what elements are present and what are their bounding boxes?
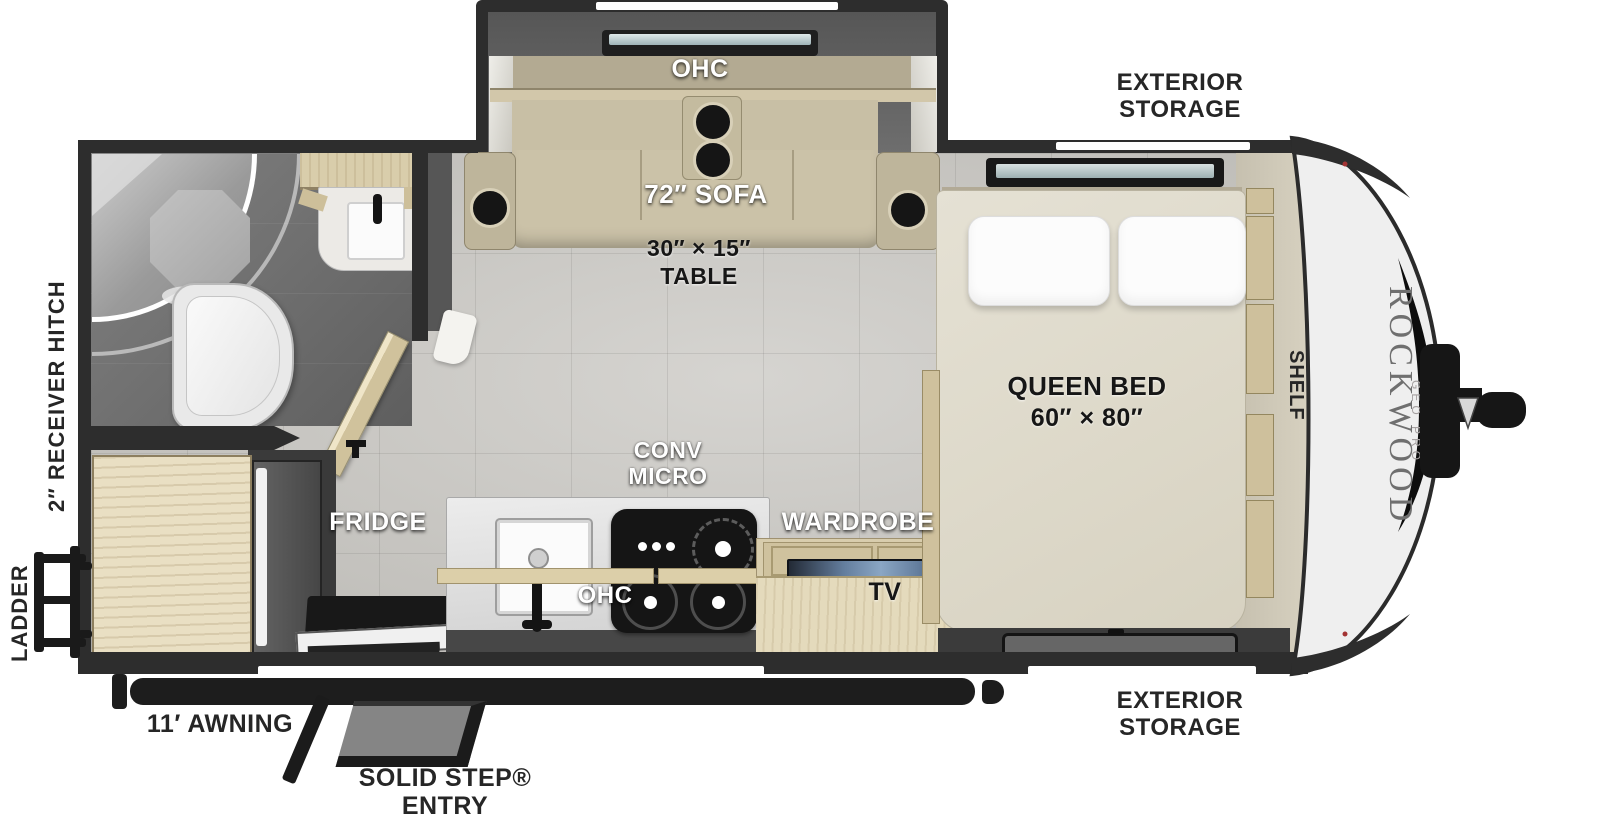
label-ohc-sofa: OHC	[600, 55, 800, 83]
label-queen-bed: QUEEN BED	[987, 372, 1187, 401]
label-exterior-storage-top: EXTERIOR STORAGE	[1080, 70, 1280, 124]
slideout-side-right	[911, 56, 937, 152]
awning-roller	[130, 678, 975, 705]
cooktop-knob-icon	[652, 542, 661, 551]
label-shelf: SHELF	[1285, 350, 1307, 421]
step-platform	[336, 701, 487, 767]
bathroom-wall	[84, 426, 300, 450]
exterior-wall	[78, 140, 478, 153]
label-line: STORAGE	[1080, 715, 1280, 742]
bathroom-wall	[412, 153, 428, 341]
bedroom-window-glass	[996, 164, 1214, 178]
label-micro: MICRO	[568, 464, 768, 490]
kitchen-faucet-icon	[522, 620, 552, 629]
cap-marker-light	[1343, 632, 1348, 637]
cap-marker-light	[1343, 162, 1348, 167]
vanity-faucet-icon	[373, 194, 382, 224]
cupholder-icon	[888, 190, 928, 230]
label-receiver-hitch: 2″ RECEIVER HITCH	[45, 280, 70, 512]
pillow	[968, 216, 1110, 306]
cupholder-icon	[470, 188, 510, 228]
window-strip	[258, 666, 764, 676]
label-conv: CONV	[568, 438, 768, 464]
burner-center	[715, 541, 731, 557]
pillow	[1118, 216, 1246, 306]
storage-hatch-handle	[1108, 629, 1124, 635]
window-strip	[1028, 666, 1256, 675]
label-table-size: 30″ × 15″	[616, 236, 782, 262]
label-tv: TV	[785, 578, 985, 606]
label-table: TABLE	[616, 264, 782, 290]
sink-drain-icon	[528, 548, 549, 569]
toilet-lid	[186, 296, 280, 416]
label-sofa: 72″ SOFA	[606, 180, 806, 209]
rv-floorplan: ROCKWOOD GEO PRO OHC 72″ SOFA 30″ × 15″ …	[0, 0, 1600, 818]
label-exterior-storage-bottom: EXTERIOR STORAGE	[1080, 688, 1280, 742]
ladder-rung	[34, 638, 86, 647]
label-bed-size: 60″ × 80″	[987, 404, 1187, 432]
label-line: SOLID STEP®	[345, 764, 545, 792]
label-line: STORAGE	[1080, 97, 1280, 124]
shower-pan	[150, 190, 250, 290]
burner-center	[712, 596, 725, 609]
label-fridge: FRIDGE	[278, 508, 478, 536]
cupholder-icon	[693, 102, 733, 142]
label-solid-step-entry: SOLID STEP® ENTRY	[345, 764, 545, 818]
step-strut	[282, 694, 331, 784]
bathroom-wall-band	[428, 153, 452, 331]
label-wardrobe: WARDROBE	[758, 508, 958, 536]
label-awning: 11′ AWNING	[120, 710, 320, 738]
kitchen-counter-base	[446, 630, 768, 654]
slideout-side-left	[489, 56, 513, 152]
label-conv-micro: CONV MICRO	[568, 438, 768, 490]
ladder-mount	[78, 562, 92, 570]
label-ohc-kitchen: OHC	[505, 583, 705, 610]
ladder-mount	[78, 630, 92, 638]
ladder-rung	[38, 596, 78, 604]
front-cap: ROCKWOOD GEO PRO	[1270, 128, 1560, 688]
awning-bracket	[112, 674, 127, 709]
cooktop-knob-icon	[638, 542, 647, 551]
door-handle-icon	[352, 446, 359, 458]
label-line: EXTERIOR	[1080, 70, 1280, 97]
pantry-cabinet	[92, 455, 252, 661]
hitch-coupler-icon	[1420, 344, 1526, 478]
refrigerator-door-edge	[256, 468, 267, 646]
vanity-cabinet	[300, 153, 414, 190]
label-line: EXTERIOR	[1080, 688, 1280, 715]
label-line: ENTRY	[345, 792, 545, 818]
slideout-skylight-glass	[609, 34, 811, 45]
slideout-roof-vent	[596, 2, 838, 10]
ladder-icon	[26, 546, 92, 658]
overhead-cabinet-edge	[658, 568, 766, 584]
cupholder-icon	[693, 140, 733, 180]
label-ladder: LADDER	[8, 564, 33, 662]
awning-bracket	[982, 680, 1004, 704]
cooktop-knob-icon	[666, 542, 675, 551]
window-strip	[1056, 142, 1250, 150]
